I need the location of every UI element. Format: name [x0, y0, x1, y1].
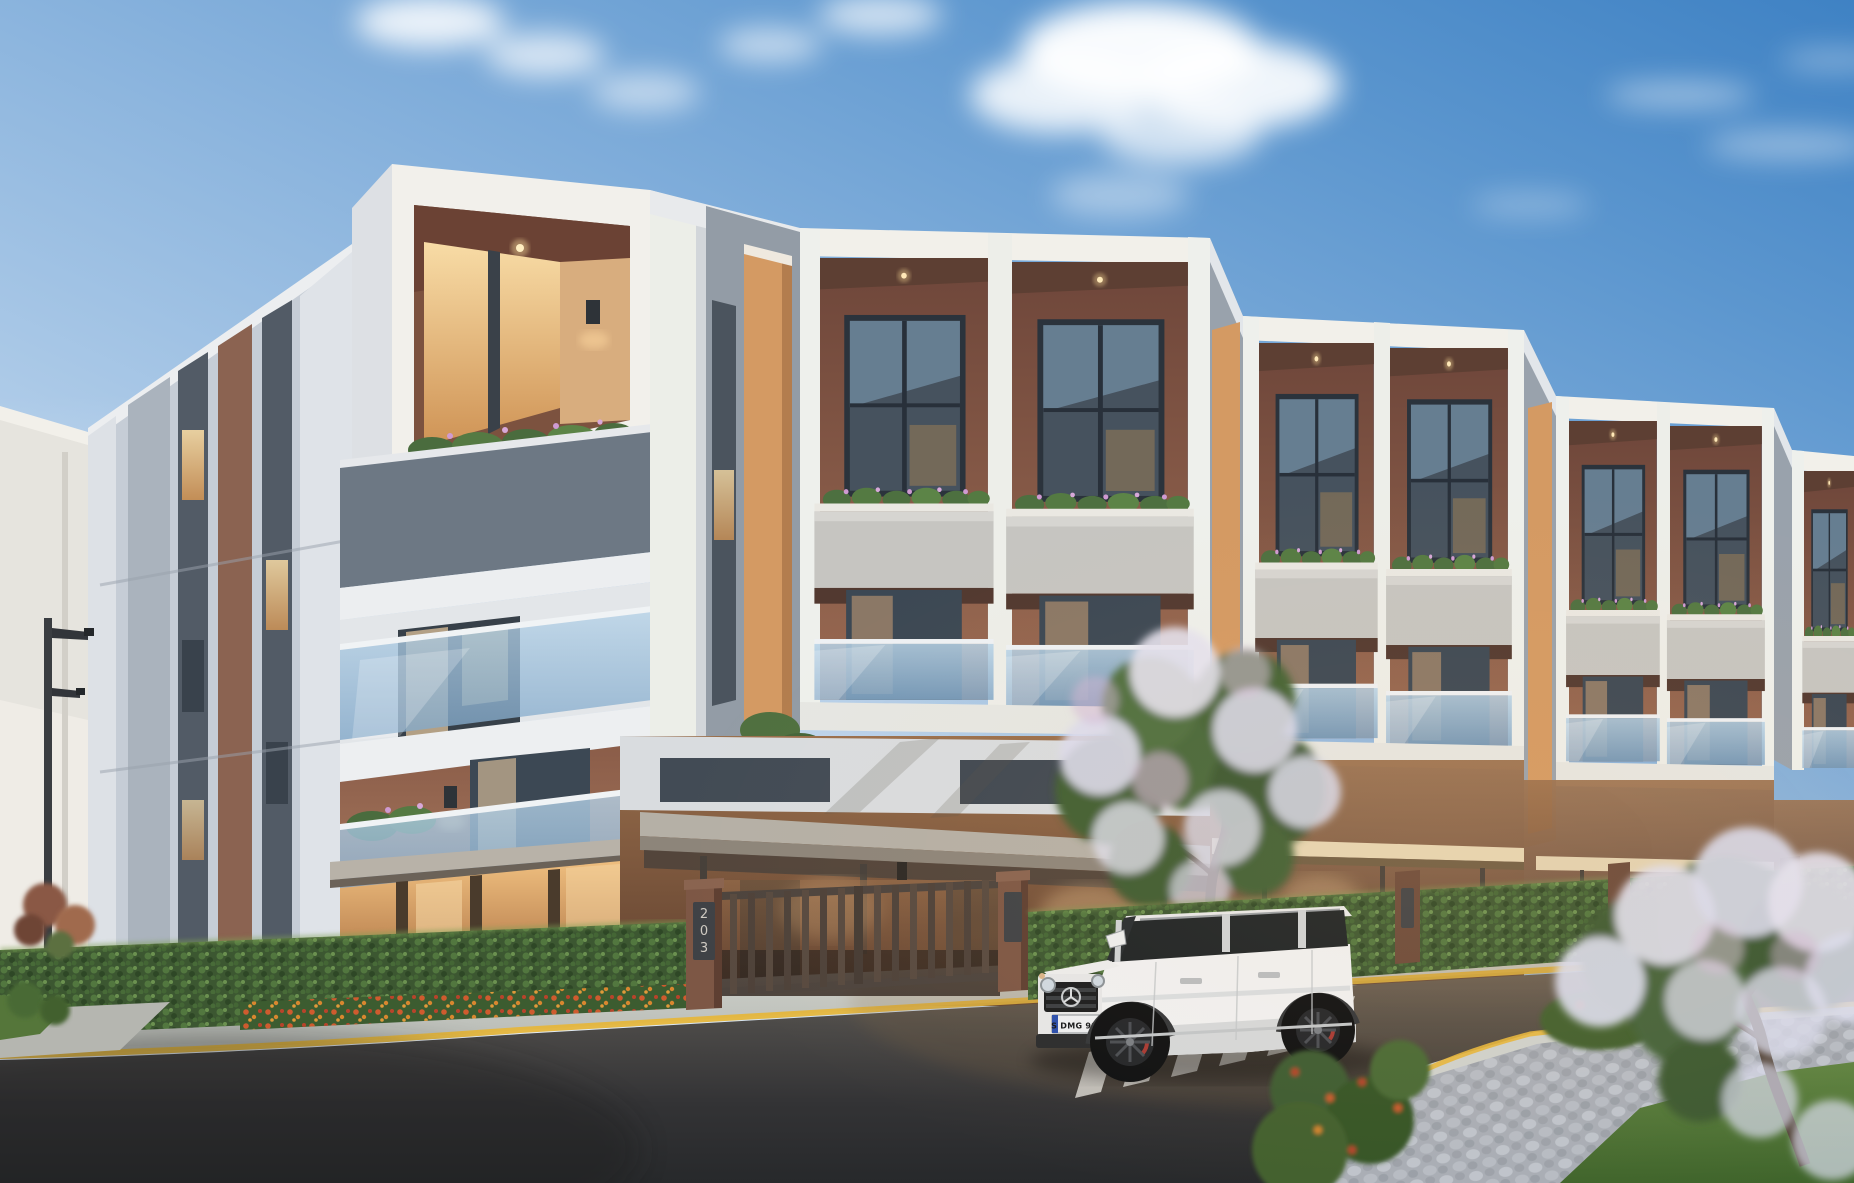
render-canvas: 2 0 3 [0, 0, 1854, 1183]
slit-window [660, 758, 830, 802]
wall-sconce [444, 786, 457, 808]
frame-column [1374, 322, 1390, 744]
cloud-puff [485, 33, 605, 77]
lit-window [182, 430, 204, 500]
blossom-cluster [1092, 802, 1164, 874]
lamp-head [84, 628, 94, 636]
gate-pillar-left: 2 0 3 [684, 878, 724, 1010]
cirrus-wisp [1605, 82, 1755, 108]
bush-flower-red [1394, 1104, 1402, 1112]
fence-slat [838, 888, 845, 985]
blossom-cluster [1060, 715, 1140, 795]
planter-flower-pink [553, 423, 559, 429]
fence-slat [928, 883, 935, 978]
fence-slat [982, 880, 989, 973]
window-strip [262, 300, 292, 982]
house-number-digit: 2 [700, 907, 708, 922]
balcony-bay [1566, 421, 1660, 761]
headlight [1041, 978, 1055, 992]
frame-column [1657, 402, 1670, 765]
lamp-head [76, 688, 85, 695]
sconce-glow [579, 331, 609, 349]
cloud-puff [718, 28, 822, 62]
c-pillar [1298, 910, 1306, 948]
fence-slat [892, 885, 899, 981]
lit-window [182, 800, 204, 860]
window-mullion [488, 250, 500, 434]
bush-flower-red [1291, 1068, 1299, 1076]
cloud-puff [1100, 105, 1260, 165]
blossom-cluster [1213, 688, 1297, 772]
gap-wall [1774, 408, 1792, 770]
dark-window [182, 640, 204, 712]
balcony-bay [1667, 426, 1765, 765]
fence-slat [748, 893, 755, 993]
house-number-digit: 3 [700, 941, 708, 956]
frame-column [988, 233, 1012, 706]
downlight-glow [511, 239, 529, 257]
balcony-bay [1802, 471, 1854, 768]
headlight [1092, 975, 1104, 987]
bush [1370, 1040, 1430, 1100]
blossom-pink [1071, 676, 1119, 724]
pillar-shade [1021, 876, 1028, 990]
red-leaf-shrub [14, 914, 46, 946]
fence-slat [874, 886, 881, 982]
cloud-puff [818, 0, 942, 35]
bush-flower-red [1326, 1094, 1334, 1102]
pillar-cap [996, 870, 1030, 882]
door-handle [1180, 978, 1202, 984]
blossom-cluster [1130, 627, 1220, 717]
blossom-cluster [1184, 790, 1260, 866]
wheel-hub [1126, 1038, 1134, 1046]
townhouse-unit-d [1774, 408, 1854, 770]
corner-bush [7, 982, 43, 1018]
corner-bush [40, 995, 70, 1025]
fence-slat [766, 892, 773, 991]
fence-slat [730, 894, 737, 994]
bush-flower-red [1358, 1078, 1366, 1086]
cirrus-wisp [1780, 49, 1854, 71]
blossom-cluster [1269, 756, 1341, 828]
lit-window [266, 560, 288, 630]
blossom-pink [1692, 922, 1744, 974]
fence-slat [946, 882, 953, 976]
bush-flower-yellow [1314, 1126, 1322, 1134]
street-scene: 2 0 3 [0, 0, 1854, 1183]
frame-column [800, 228, 820, 708]
fence-slat [820, 889, 827, 987]
cloud-wisp [1050, 173, 1190, 217]
planter-flower-pink [502, 427, 508, 433]
gate-frame [854, 886, 863, 984]
orange-pilaster [1528, 402, 1552, 834]
flower-pink [417, 803, 423, 809]
frame-column [1556, 396, 1569, 764]
indicator-lamp [1039, 973, 1045, 979]
blossom-pink [1220, 647, 1270, 697]
shrub-green [46, 931, 74, 959]
fence-slat [784, 891, 791, 990]
brown-panel [218, 324, 252, 986]
wall-sconce [897, 862, 907, 880]
frame-column [1762, 408, 1774, 766]
corner-townhouse-front [330, 424, 660, 1005]
blossom-cluster [1665, 960, 1745, 1040]
fence-slat [964, 881, 971, 975]
pillar-cap [684, 878, 724, 890]
blossom-cluster [1722, 1062, 1798, 1138]
door-handle [1258, 972, 1280, 978]
house-number-digit: 0 [700, 924, 708, 939]
frame-column [1792, 450, 1804, 770]
townhouse-unit-c [1524, 330, 1774, 848]
pillar-shade [714, 884, 722, 1008]
planter-flower-pink [447, 433, 453, 439]
bush-flower-red [1348, 1146, 1356, 1154]
house-number-plate [1401, 888, 1414, 928]
balcony-bay [1386, 348, 1512, 746]
balcony-bay [814, 258, 993, 700]
flower-pink [385, 807, 391, 813]
cirrus-wisp [1470, 193, 1590, 217]
fence-slat [910, 884, 917, 979]
frame-column [1508, 330, 1524, 746]
gate-pillar-right [996, 870, 1030, 992]
wall-sconce [586, 300, 600, 324]
cirrus-wisp [1705, 130, 1854, 160]
blossom-pink [1771, 931, 1819, 979]
b-pillar [1222, 914, 1230, 952]
gray-panel [128, 377, 170, 994]
corner-townhouse-west-face [88, 244, 352, 1012]
blossom-cluster [1737, 967, 1827, 1057]
fence-slat [802, 890, 809, 988]
cloud-puff [355, 0, 505, 48]
planter-flower-pink [597, 419, 602, 424]
cloud-puff [590, 73, 700, 111]
house-number-plate [1004, 892, 1022, 942]
lit-window [714, 470, 734, 540]
blossom-pink [1132, 752, 1188, 808]
